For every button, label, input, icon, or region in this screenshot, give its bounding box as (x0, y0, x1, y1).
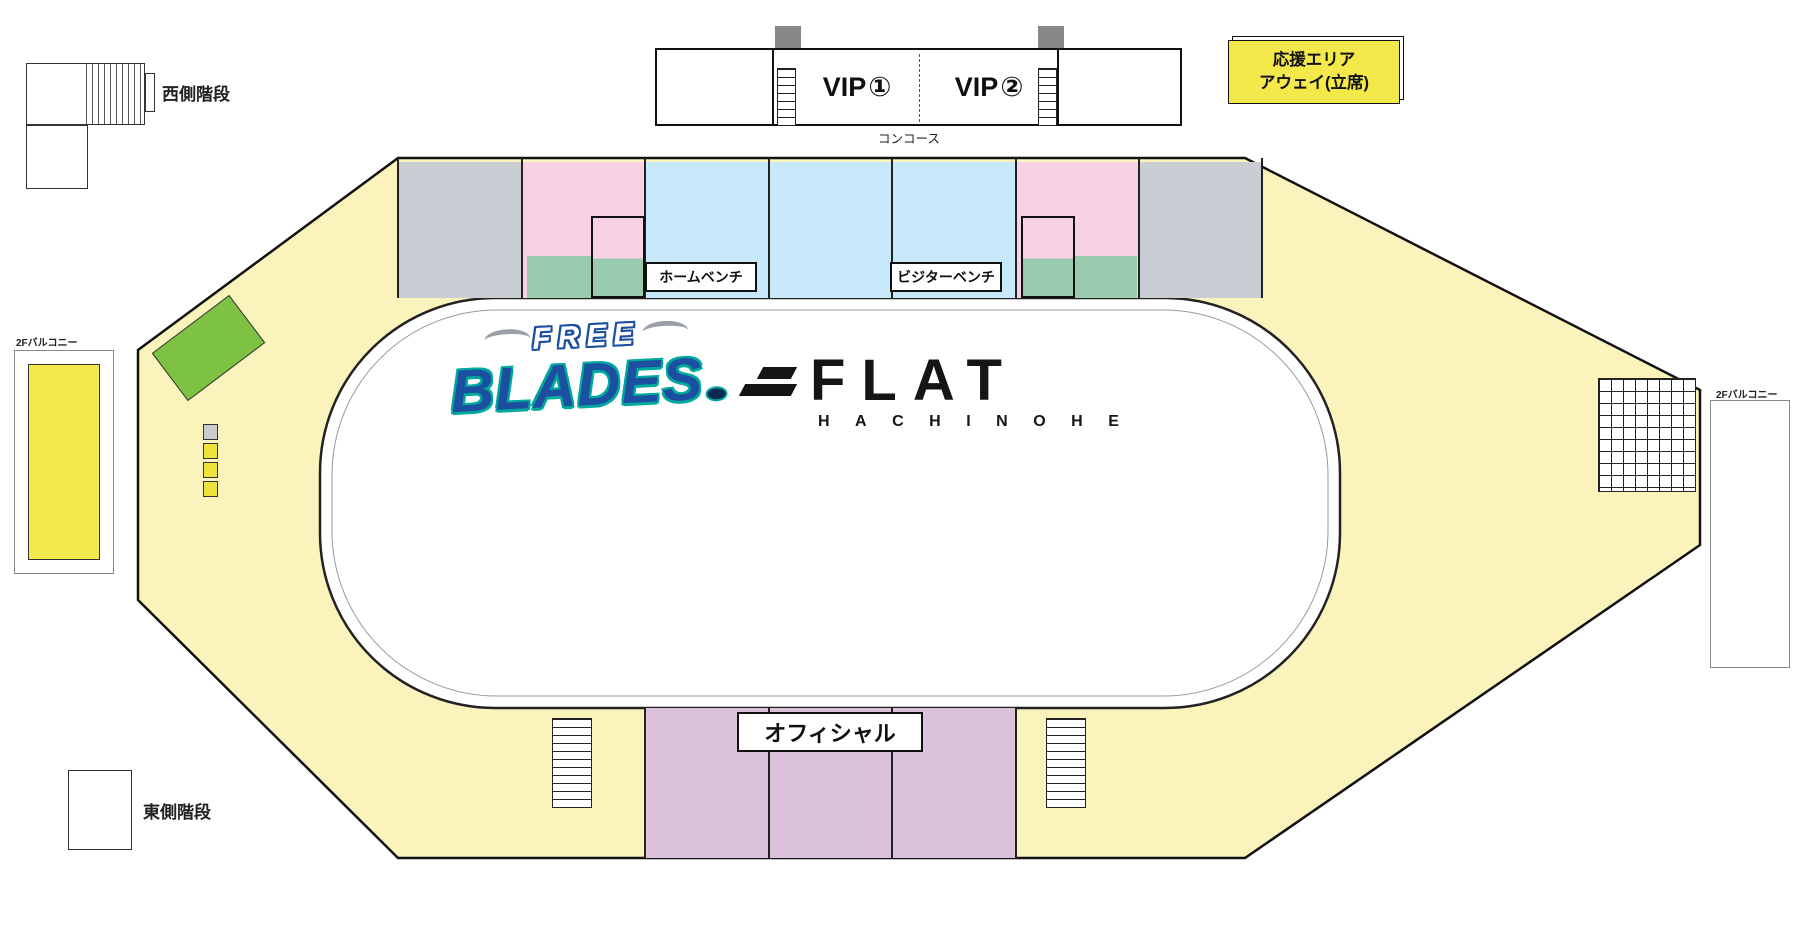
west-stairs-label: 西側階段 (162, 80, 230, 105)
section-bg-w10 (1139, 162, 1262, 298)
section-divider (768, 158, 770, 298)
stair-ladder (1046, 718, 1086, 808)
section-bg-w4 (398, 162, 522, 298)
home-bench-box: ホームベンチ (645, 262, 757, 292)
hitouch-area-patch (527, 256, 591, 298)
west-stairs-tab (145, 73, 155, 112)
vip-stairs (777, 68, 796, 126)
west-stairs-shape (26, 63, 145, 125)
visitor-bench-box: ビジターベンチ (890, 262, 1002, 292)
vip-wall (772, 50, 774, 124)
section-divider (1138, 158, 1140, 298)
vip1-num: ① (868, 72, 891, 103)
section-divider (1015, 158, 1017, 298)
east-stairs-label: 東側階段 (143, 798, 211, 823)
balcony-left-label: 2Fバルコニー (16, 334, 77, 349)
section-divider (397, 158, 399, 298)
flat-mark-icon (742, 367, 794, 396)
west-stairs-steps (26, 125, 88, 189)
logo-blades-text: BLADES (449, 345, 705, 425)
vip1-text: VIP (823, 72, 867, 103)
standing-marker (203, 443, 218, 459)
logo-flat-text: FLAT (810, 352, 1018, 410)
roof-block (775, 26, 801, 50)
hitouch-area-patch (1075, 256, 1137, 298)
vip-structure: VIP① VIP② (655, 48, 1182, 126)
concourse-label: コンコース (878, 128, 940, 147)
logo-hachinohe-text: HACHINOHE (818, 413, 1172, 431)
away-line-2: アウェイ(立席) (1259, 74, 1369, 93)
standing-marker (203, 424, 218, 440)
vip-roof-doors (660, 14, 1177, 48)
glass-room-w5 (591, 216, 645, 298)
balcony-right-label: 2Fバルコニー (1716, 386, 1777, 401)
east-stairs-shape (68, 770, 132, 850)
vip-room-divider (919, 54, 920, 122)
official-box: オフィシャル (737, 712, 923, 752)
stairs-hatch (86, 64, 144, 124)
balcony-right-box (1710, 400, 1790, 668)
away-cheer-area-box: 応援エリア アウェイ(立席) (1228, 40, 1400, 104)
vip2-num: ② (1000, 72, 1023, 103)
flat-hachinohe-logo: FLAT HACHINOHE (742, 352, 1172, 431)
vip-wall (1057, 50, 1059, 124)
section-divider (521, 158, 523, 298)
vip-room-2-label: VIP② (925, 50, 1053, 124)
away-line-1: 応援エリア (1273, 51, 1356, 70)
free-blades-logo: FREE BLADES (446, 313, 731, 424)
east-end-steps-grid (1598, 378, 1696, 492)
section-divider (1261, 158, 1263, 298)
vip-room-1-label: VIP① (797, 50, 917, 124)
vip-stairs (1038, 68, 1057, 126)
section-divider (644, 708, 646, 858)
standing-marker (203, 462, 218, 478)
standing-marker (203, 481, 218, 497)
stair-ladder (552, 718, 592, 808)
glass-room-w9 (1021, 216, 1075, 298)
section-divider (1015, 708, 1017, 858)
home-cheer-area-box (28, 364, 100, 560)
puck-icon (706, 386, 729, 402)
roof-block (1038, 26, 1064, 50)
vip2-text: VIP (955, 72, 999, 103)
arena-seating-map: { "stairs": { "west": "西側階段", "east": "東… (0, 0, 1804, 936)
